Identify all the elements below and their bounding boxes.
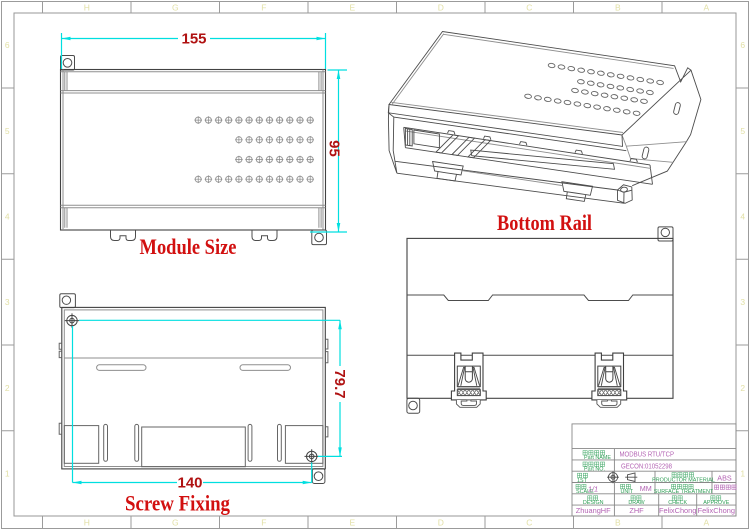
svg-text:B: B xyxy=(615,3,621,13)
svg-text:SURFACE TREATMENT: SURFACE TREATMENT xyxy=(654,489,714,495)
svg-text:3: 3 xyxy=(5,297,10,307)
svg-text:H: H xyxy=(84,518,90,528)
svg-text:1ST: 1ST xyxy=(577,478,588,484)
svg-text:6: 6 xyxy=(740,40,745,50)
svg-text:155: 155 xyxy=(181,31,206,48)
svg-text:GECON:01052298: GECON:01052298 xyxy=(621,461,672,470)
svg-text:1: 1 xyxy=(5,469,10,479)
svg-text:2: 2 xyxy=(740,383,745,393)
svg-text:Screw Fixing: Screw Fixing xyxy=(125,491,230,516)
svg-text:G: G xyxy=(172,518,179,528)
svg-text:ZHF: ZHF xyxy=(629,506,644,515)
svg-text:140: 140 xyxy=(177,475,202,492)
svg-text:A: A xyxy=(703,3,709,13)
svg-text:G: G xyxy=(172,3,179,13)
svg-text:A: A xyxy=(703,518,709,528)
svg-text:5: 5 xyxy=(740,126,745,136)
svg-text:Bottom Rail: Bottom Rail xyxy=(497,210,592,235)
svg-text:FelixChong: FelixChong xyxy=(659,506,696,515)
svg-text:Module Size: Module Size xyxy=(140,234,237,259)
svg-text:H: H xyxy=(84,3,90,13)
svg-text:1: 1 xyxy=(740,469,745,479)
svg-text:B: B xyxy=(615,518,621,528)
svg-text:UNIT: UNIT xyxy=(621,489,634,495)
svg-text:1/1: 1/1 xyxy=(588,484,598,493)
svg-text:4: 4 xyxy=(5,212,10,222)
svg-text:Part NAME: Part NAME xyxy=(584,455,611,461)
svg-text:ABS: ABS xyxy=(717,474,732,483)
svg-text:D: D xyxy=(438,3,444,13)
svg-text:Part NO.: Part NO. xyxy=(584,467,605,473)
svg-text:6: 6 xyxy=(5,40,10,50)
svg-text:ZhuangHF: ZhuangHF xyxy=(576,506,611,515)
svg-text:C: C xyxy=(526,518,532,528)
svg-text:D: D xyxy=(438,518,444,528)
svg-text:95: 95 xyxy=(326,140,343,157)
svg-text:79.7: 79.7 xyxy=(331,369,348,398)
svg-text:E: E xyxy=(349,3,355,13)
svg-text:4: 4 xyxy=(740,212,745,222)
svg-text:PRODUCTOR MATERIAL: PRODUCTOR MATERIAL xyxy=(652,478,715,484)
svg-text:5: 5 xyxy=(5,126,10,136)
svg-text:F: F xyxy=(261,518,266,528)
svg-text:3: 3 xyxy=(740,297,745,307)
svg-text:F: F xyxy=(261,3,266,13)
svg-text:MM: MM xyxy=(640,484,652,493)
svg-text:MODBUS RTU/TCP: MODBUS RTU/TCP xyxy=(620,449,675,458)
svg-text:2: 2 xyxy=(5,383,10,393)
svg-text:C: C xyxy=(526,3,532,13)
svg-text:FelixChong: FelixChong xyxy=(698,506,735,515)
svg-text:E: E xyxy=(349,518,355,528)
